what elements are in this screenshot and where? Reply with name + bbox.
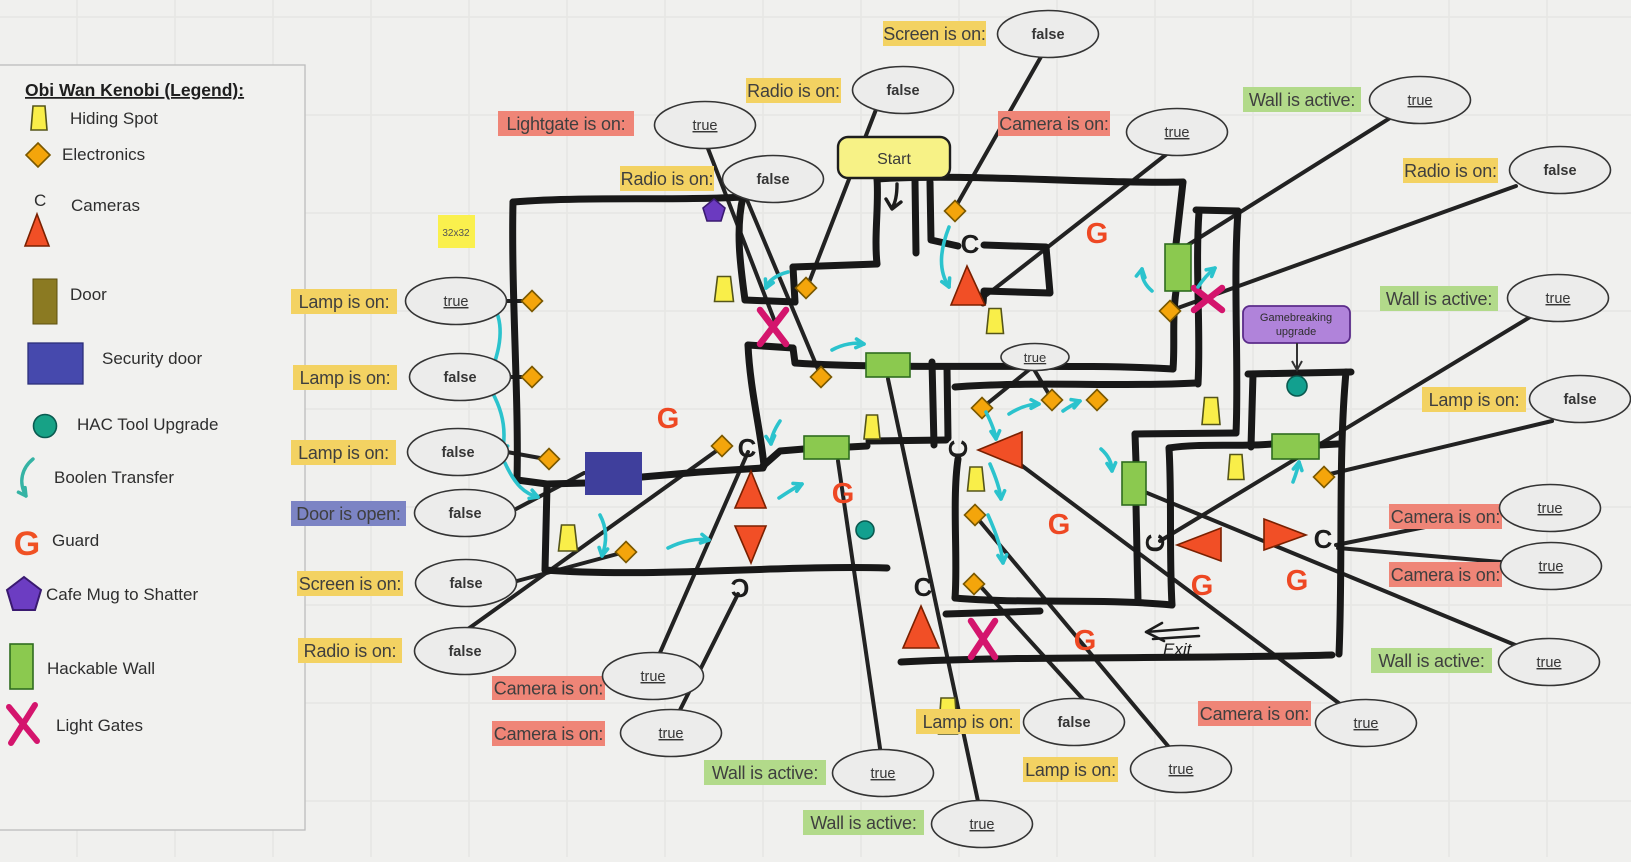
svg-text:true: true <box>1165 125 1190 141</box>
svg-text:Camera is on:: Camera is on: <box>1391 507 1500 527</box>
svg-text:Radio is on:: Radio is on: <box>747 81 840 101</box>
svg-text:G: G <box>1286 565 1309 597</box>
svg-text:Screen is on:: Screen is on: <box>883 24 985 44</box>
svg-text:Lamp is on:: Lamp is on: <box>300 368 391 388</box>
svg-text:true: true <box>693 118 718 134</box>
svg-text:Cafe Mug to Shatter: Cafe Mug to Shatter <box>46 585 198 604</box>
svg-text:G: G <box>1074 625 1097 657</box>
svg-text:Camera is on:: Camera is on: <box>494 724 603 744</box>
svg-text:Radio is on:: Radio is on: <box>1404 161 1497 181</box>
svg-text:Lamp is on:: Lamp is on: <box>298 443 389 463</box>
svg-text:Screen is on:: Screen is on: <box>299 574 401 594</box>
svg-text:C: C <box>943 439 973 458</box>
svg-text:Security door: Security door <box>102 349 202 368</box>
svg-text:true: true <box>1537 655 1562 671</box>
svg-text:G: G <box>1191 570 1214 602</box>
svg-text:Wall is active:: Wall is active: <box>1378 651 1484 671</box>
svg-text:false: false <box>756 172 789 188</box>
svg-text:false: false <box>1031 27 1064 43</box>
svg-text:Lamp is on:: Lamp is on: <box>1429 390 1520 410</box>
svg-text:false: false <box>449 576 482 592</box>
svg-text:true: true <box>871 766 896 782</box>
svg-text:Light Gates: Light Gates <box>56 716 143 735</box>
svg-text:Lamp is on:: Lamp is on: <box>923 712 1014 732</box>
svg-text:true: true <box>970 817 995 833</box>
svg-text:HAC Tool Upgrade: HAC Tool Upgrade <box>77 415 218 434</box>
svg-text:Camera is on:: Camera is on: <box>1391 565 1500 585</box>
svg-text:Door: Door <box>70 285 107 304</box>
svg-text:Boolen Transfer: Boolen Transfer <box>54 468 174 487</box>
svg-text:Camera is on:: Camera is on: <box>494 679 603 699</box>
svg-text:G: G <box>1086 218 1109 250</box>
svg-text:Guard: Guard <box>52 531 99 550</box>
svg-text:Wall is active:: Wall is active: <box>1249 90 1355 110</box>
svg-text:Hackable Wall: Hackable Wall <box>47 659 155 678</box>
svg-text:Wall is active:: Wall is active: <box>810 813 916 833</box>
svg-text:G: G <box>832 478 855 510</box>
svg-text:true: true <box>1024 350 1046 365</box>
svg-text:C: C <box>1314 524 1333 554</box>
svg-text:Obi Wan Kenobi (Legend):: Obi Wan Kenobi (Legend): <box>25 80 244 100</box>
svg-text:false: false <box>448 506 481 522</box>
svg-text:true: true <box>1354 716 1379 732</box>
svg-text:Wall is active:: Wall is active: <box>712 763 818 783</box>
svg-text:C: C <box>34 191 46 210</box>
svg-text:false: false <box>448 644 481 660</box>
svg-text:C: C <box>914 572 933 602</box>
svg-text:Gamebreaking: Gamebreaking <box>1260 312 1332 324</box>
svg-text:Lamp is on:: Lamp is on: <box>299 292 390 312</box>
svg-text:G: G <box>657 403 680 435</box>
svg-text:true: true <box>1546 291 1571 307</box>
svg-text:false: false <box>1543 163 1576 179</box>
svg-text:Camera is on:: Camera is on: <box>999 114 1108 134</box>
svg-text:C: C <box>1140 533 1170 552</box>
svg-text:true: true <box>1408 93 1433 109</box>
svg-text:C: C <box>738 433 757 463</box>
svg-text:true: true <box>641 669 666 685</box>
svg-text:G: G <box>14 525 40 563</box>
svg-text:Camera is on:: Camera is on: <box>1200 704 1309 724</box>
svg-text:true: true <box>1538 501 1563 517</box>
svg-text:upgrade: upgrade <box>1276 326 1316 338</box>
svg-text:Start: Start <box>877 151 911 168</box>
svg-text:C: C <box>961 229 980 259</box>
svg-text:true: true <box>444 294 469 310</box>
svg-text:false: false <box>441 445 474 461</box>
svg-text:false: false <box>1057 715 1090 731</box>
svg-text:C: C <box>730 573 749 603</box>
svg-text:true: true <box>1539 559 1564 575</box>
svg-text:32x32: 32x32 <box>442 228 470 239</box>
svg-text:Exit: Exit <box>1163 640 1193 659</box>
svg-text:Radio is on:: Radio is on: <box>621 169 714 189</box>
svg-text:false: false <box>443 370 476 386</box>
svg-text:Lightgate is on:: Lightgate is on: <box>507 114 626 134</box>
svg-text:true: true <box>659 726 684 742</box>
svg-text:false: false <box>1563 392 1596 408</box>
svg-text:Electronics: Electronics <box>62 145 145 164</box>
svg-text:Lamp is on:: Lamp is on: <box>1025 760 1116 780</box>
svg-text:Wall is active:: Wall is active: <box>1386 289 1492 309</box>
svg-text:Hiding Spot: Hiding Spot <box>70 109 158 128</box>
svg-text:Cameras: Cameras <box>71 196 140 215</box>
svg-text:false: false <box>886 83 919 99</box>
svg-text:G: G <box>1048 509 1071 541</box>
svg-text:Door is open:: Door is open: <box>296 504 400 524</box>
svg-text:Radio is on:: Radio is on: <box>304 641 397 661</box>
svg-text:true: true <box>1169 762 1194 778</box>
